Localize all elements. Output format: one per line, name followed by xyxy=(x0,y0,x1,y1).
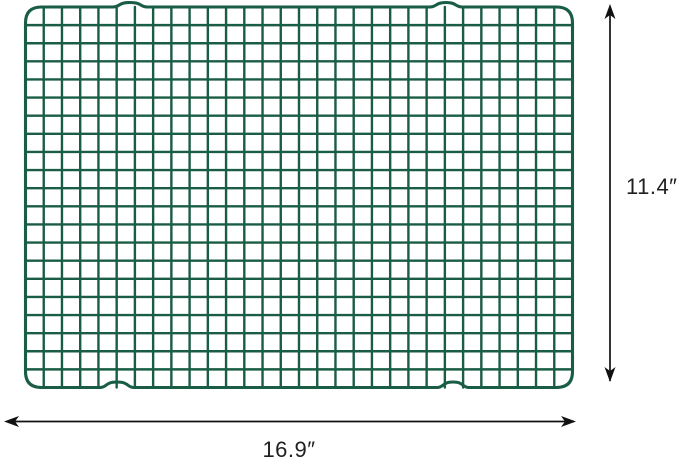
height-dimension-label: 11.4″ xyxy=(626,176,677,198)
width-dimension-arrow xyxy=(4,416,576,427)
product-dimension-diagram: 11.4″ 16.9″ xyxy=(0,0,679,465)
diagram-canvas xyxy=(0,0,679,465)
rack-grid-wires xyxy=(26,7,573,388)
width-dimension-label: 16.9″ xyxy=(229,439,349,461)
cooling-rack-illustration xyxy=(26,3,573,388)
height-dimension-arrow xyxy=(605,4,616,382)
